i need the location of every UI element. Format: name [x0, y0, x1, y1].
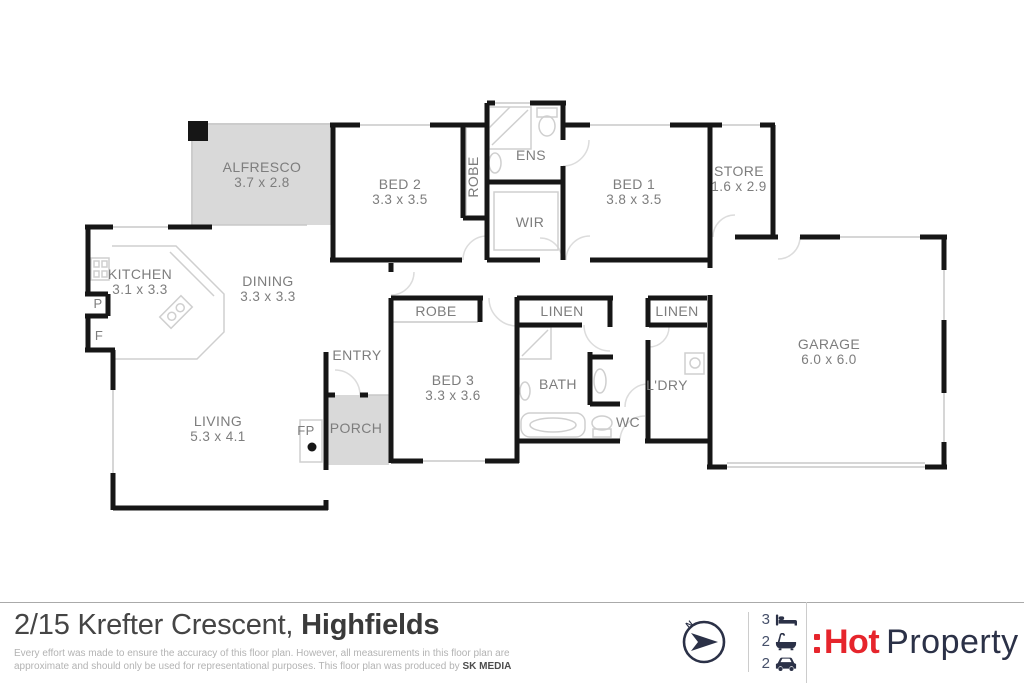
- floorplan-svg: [0, 0, 1024, 602]
- stat-cars: 2: [756, 653, 802, 674]
- compass-icon: N: [678, 616, 728, 666]
- room-label-garage: GARAGE6.0 x 6.0: [798, 336, 860, 368]
- room-label-wc: WC: [616, 414, 640, 430]
- room-label-wir: WIR: [516, 214, 544, 230]
- room-label-bed1: BED 13.8 x 3.5: [606, 176, 661, 208]
- svg-text:N: N: [684, 619, 695, 631]
- fixtures: [91, 107, 704, 462]
- room-label-fireplace: FP: [297, 423, 314, 439]
- logo-hot-text: Hot: [824, 623, 879, 662]
- logo-property-text: Property: [886, 623, 1019, 662]
- room-label-bath: BATH: [539, 376, 577, 392]
- bed-icon: [775, 611, 797, 629]
- room-label-laundry: L'DRY: [646, 377, 688, 393]
- hot-property-logo: Hot Property: [814, 602, 1024, 683]
- room-label-alfresco: ALFRESCO3.7 x 2.8: [223, 159, 302, 191]
- room-label-living: LIVING5.3 x 4.1: [190, 413, 245, 445]
- address-suburb: Highfields: [301, 609, 439, 641]
- room-label-fridge: F: [95, 328, 103, 344]
- bathroom-count: 2: [756, 633, 770, 650]
- room-label-dining: DINING3.3 x 3.3: [240, 273, 295, 305]
- address-street: 2/15 Krefter Crescent,: [14, 609, 293, 641]
- stat-bedrooms: 3: [756, 609, 802, 630]
- room-label-bed2: BED 23.3 x 3.5: [372, 176, 427, 208]
- room-label-pantry: P: [93, 296, 102, 312]
- room-label-linen2: LINEN: [655, 303, 698, 319]
- room-label-linen1: LINEN: [540, 303, 583, 319]
- alfresco-post: [188, 121, 208, 141]
- disclaimer-text: Every effort was made to ensure the accu…: [14, 647, 511, 673]
- fireplace-dot: [308, 443, 317, 452]
- property-address: 2/15 Krefter Crescent, Highfields: [14, 609, 439, 642]
- floorplan-drawing: ALFRESCO3.7 x 2.8 BED 23.3 x 3.5 ROBE EN…: [0, 0, 1024, 602]
- car-icon: [775, 655, 797, 673]
- room-label-robe-bed2: ROBE: [465, 156, 481, 197]
- room-label-store: STORE1.6 x 2.9: [711, 163, 766, 195]
- room-label-porch: PORCH: [330, 420, 383, 436]
- car-count: 2: [756, 655, 770, 672]
- room-label-entry: ENTRY: [332, 347, 381, 363]
- stat-bathrooms: 2: [756, 631, 802, 652]
- room-label-bed3: BED 33.3 x 3.6: [425, 372, 480, 404]
- property-stats: 3 2 2: [756, 609, 802, 675]
- bath-icon: [775, 633, 797, 651]
- logo-dots: [814, 634, 820, 653]
- producer-name: SK MEDIA: [462, 661, 511, 672]
- room-label-ens: ENS: [516, 147, 546, 163]
- footer-divider-2: [806, 602, 807, 683]
- floorplan-page: ALFRESCO3.7 x 2.8 BED 23.3 x 3.5 ROBE EN…: [0, 0, 1024, 683]
- room-label-kitchen: KITCHEN3.1 x 3.3: [108, 266, 172, 298]
- bedroom-count: 3: [756, 611, 770, 628]
- footer-divider-1: [748, 612, 749, 672]
- room-label-robe-bed3: ROBE: [415, 303, 456, 319]
